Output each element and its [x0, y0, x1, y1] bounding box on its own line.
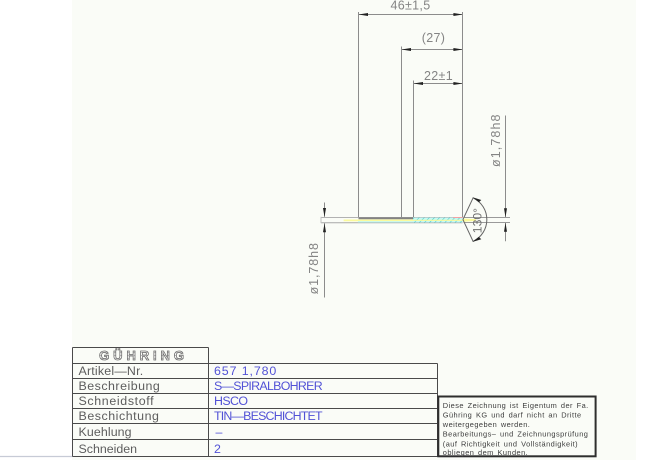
svg-text:HSCO: HSCO [214, 394, 248, 408]
svg-text:22±1: 22±1 [424, 69, 453, 83]
svg-text:ø1,78h8: ø1,78h8 [489, 113, 503, 167]
svg-text:Beschreibung: Beschreibung [79, 379, 161, 393]
svg-text:Bearbeitungs– und Zeichnungspr: Bearbeitungs– und Zeichnungsprüfung [443, 430, 589, 439]
svg-text:(27): (27) [422, 31, 445, 45]
svg-text:657 1,780: 657 1,780 [214, 364, 277, 378]
svg-text:Schneidstoff: Schneidstoff [79, 394, 155, 408]
svg-text:Kuehlung: Kuehlung [79, 425, 132, 439]
svg-text:(auf Richtigkeit und Vollständ: (auf Richtigkeit und Vollständigkeit) [443, 439, 578, 448]
svg-text:130°: 130° [471, 208, 485, 233]
svg-text:46±1,5: 46±1,5 [391, 0, 431, 13]
svg-text:S—SPIRALBOHRER: S—SPIRALBOHRER [214, 379, 323, 393]
svg-text:GÜHRING: GÜHRING [99, 348, 188, 363]
svg-text:Diese Zeichnung ist Eigentum d: Diese Zeichnung ist Eigentum der Fa. [443, 401, 589, 410]
svg-text:obliegen dem Kunden.: obliegen dem Kunden. [443, 448, 528, 457]
svg-text:–: – [216, 425, 223, 439]
svg-text:2: 2 [214, 442, 221, 456]
svg-text:TIN—BESCHICHTET: TIN—BESCHICHTET [214, 409, 323, 423]
svg-text:ø1,78h8: ø1,78h8 [307, 242, 321, 294]
svg-text:weitergegeben werden.: weitergegeben werden. [442, 420, 530, 429]
svg-text:Beschichtung: Beschichtung [79, 409, 160, 423]
svg-text:Gühring KG und darf nicht an D: Gühring KG und darf nicht an Dritte [443, 411, 582, 420]
svg-text:Schneiden: Schneiden [79, 442, 138, 456]
svg-text:Artikel—Nr.: Artikel—Nr. [79, 364, 144, 378]
